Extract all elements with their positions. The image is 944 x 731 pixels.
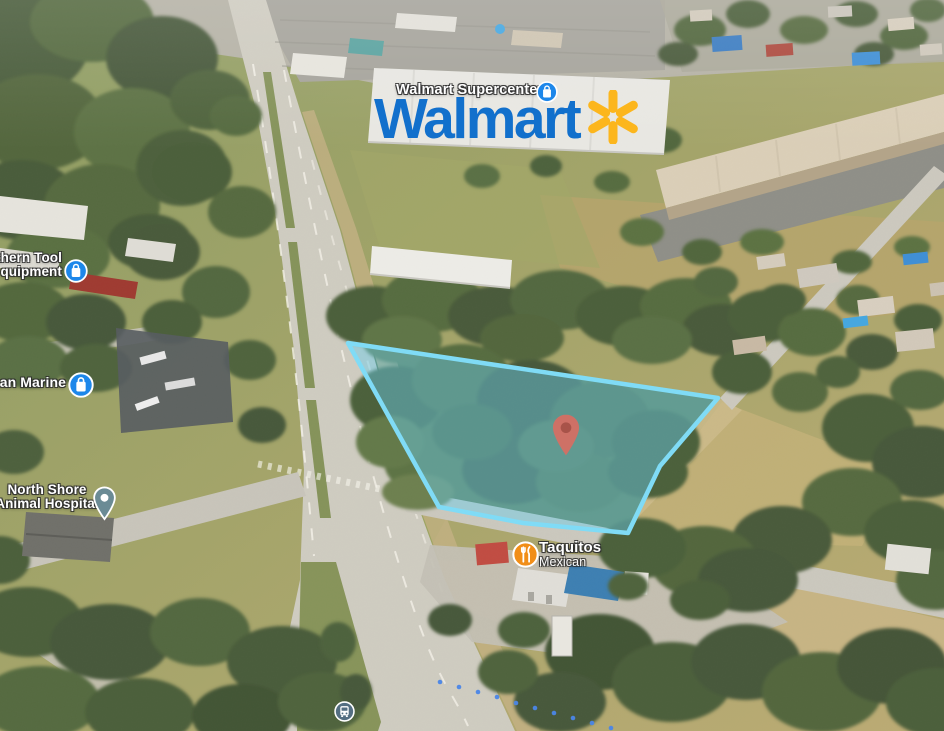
shopping-bag-icon[interactable] bbox=[64, 259, 88, 283]
aerial-map-canvas[interactable]: Walmart Walmart Supercenter thern Tool q… bbox=[0, 0, 944, 731]
walmart-spark-icon bbox=[586, 90, 640, 149]
walmart-supercenter-label[interactable]: Walmart Supercenter bbox=[396, 83, 536, 97]
marine-label[interactable]: man Marine bbox=[0, 375, 66, 389]
taquitos-label[interactable]: Taquitos Mexican bbox=[539, 540, 601, 570]
southern-tool-label[interactable]: thern Tool quipment bbox=[0, 251, 62, 279]
shopping-bag-icon[interactable] bbox=[68, 372, 94, 398]
place-pin-icon[interactable] bbox=[91, 486, 118, 521]
shopping-bag-icon[interactable] bbox=[536, 81, 558, 103]
bus-stop-icon[interactable] bbox=[334, 701, 355, 722]
red-map-pin-icon[interactable] bbox=[550, 413, 582, 457]
restaurant-icon[interactable] bbox=[512, 541, 539, 568]
